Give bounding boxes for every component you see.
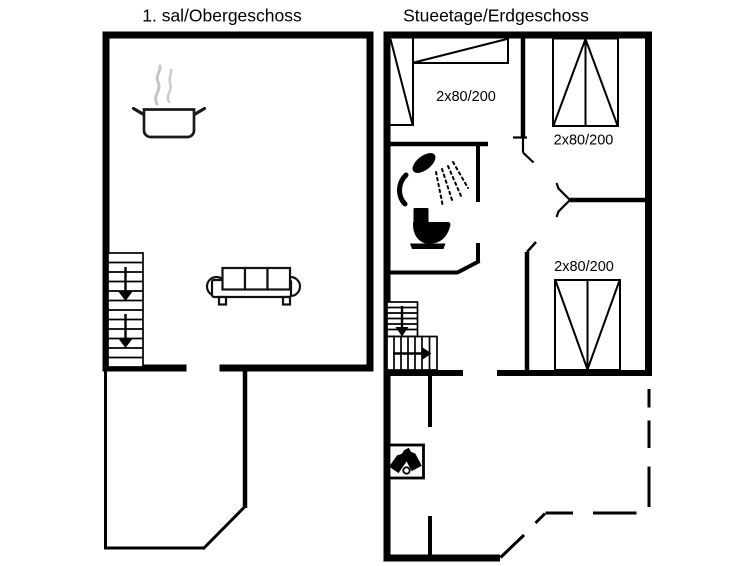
upper-extension-wall-left-bottom [106,368,205,548]
wardrobe-vertical [391,39,414,126]
terrace-dashed-boundary [501,389,650,558]
wardrobe-vertical-diagonal [391,39,413,125]
staircase-down-icon [108,253,143,367]
staircase-turn-icon [387,302,437,370]
wardrobe-label-1: 2x80/200 [436,89,496,105]
sofa-leg-right [283,297,290,305]
sofa-leg-left [219,297,226,305]
shower-hose [400,175,407,204]
pot-body [144,110,194,138]
wardrobe-horizontal [413,39,508,64]
toilet-icon [410,208,450,249]
ground-floor-plan: Stueetage/Erdgeschoss [384,6,653,562]
cooking-pot-icon [134,66,205,137]
bedroom1-door [513,138,534,163]
floor-plan-canvas: 1. sal/Obergeschoss [0,0,755,566]
upper-floor-plan: 1. sal/Obergeschoss [106,6,371,550]
wardrobe-top-right [553,39,618,127]
steam-line-1 [156,66,161,104]
wardrobe-label-3: 2x80/200 [554,259,614,275]
steam-line-2 [168,70,171,102]
sofa-cushion-2 [245,268,268,290]
wine-glass-circle [403,467,409,473]
wardrobe-middle-right [555,280,620,370]
sofa-cushion-3 [268,268,291,290]
sofa-icon [207,268,300,305]
toilet-base [410,244,446,250]
toilet-tank [414,208,429,224]
wall-opening-chevron [557,183,571,217]
floor-plan-page: 1. sal/Obergeschoss [0,0,755,566]
upper-main-room-walls [106,35,370,368]
shower-spray [436,162,468,207]
wardrobe-horizontal-diagonal [414,39,507,63]
upper-extension-wall-chamfer [203,507,245,550]
toilet-bowl [413,222,450,244]
bedroom1-door-swing [523,153,534,163]
shower-icon [400,149,469,207]
bedroom3-door-swing [527,242,536,252]
sofa-cushion-1 [223,268,246,290]
upper-floor-title: 1. sal/Obergeschoss [142,6,302,26]
shower-head [409,149,439,177]
wine-bottles-icon [389,445,424,478]
wardrobe-label-2: 2x80/200 [554,133,614,149]
ground-floor-title: Stueetage/Erdgeschoss [403,6,589,26]
bathroom-chamfer-wall [458,261,480,273]
